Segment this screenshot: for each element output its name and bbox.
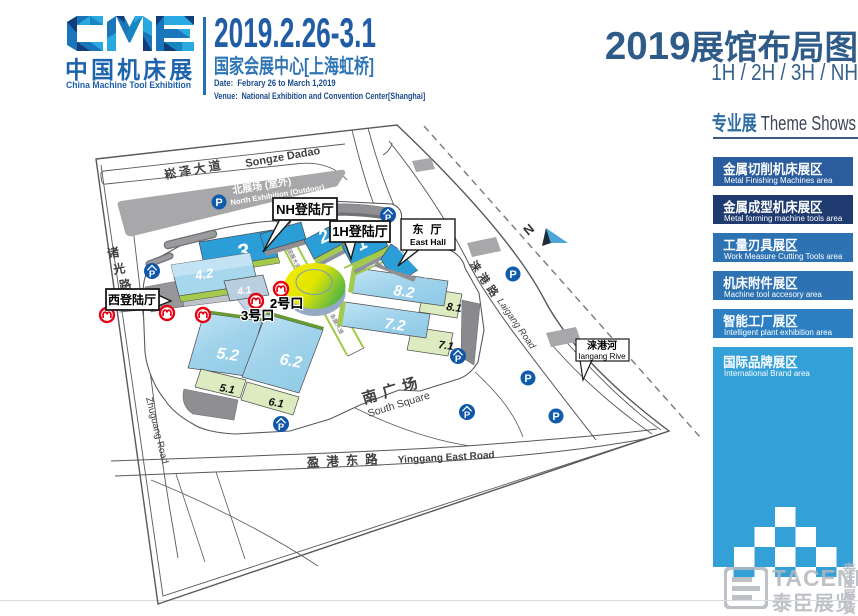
svg-text:P: P <box>464 410 471 421</box>
svg-text:P: P <box>524 373 531 385</box>
svg-text:光: 光 <box>111 260 126 277</box>
svg-text:P: P <box>278 422 285 433</box>
svg-text:8.2: 8.2 <box>392 282 416 302</box>
svg-text:East Hall: East Hall <box>410 237 446 247</box>
svg-text:西登陆厅: 西登陆厅 <box>108 292 156 307</box>
svg-text:NH登陆厅: NH登陆厅 <box>276 202 334 217</box>
svg-text:P: P <box>552 411 559 423</box>
svg-text:P: P <box>509 269 516 281</box>
svg-text:5.2: 5.2 <box>215 345 239 365</box>
svg-text:2号口: 2号口 <box>270 296 303 311</box>
svg-text:P: P <box>215 197 222 209</box>
svg-text:1H登陆厅: 1H登陆厅 <box>332 224 388 239</box>
svg-text:8.1: 8.1 <box>446 301 463 315</box>
svg-text:Laigang Road: Laigang Road <box>495 296 538 351</box>
svg-text:东 厅: 东 厅 <box>412 222 443 236</box>
svg-text:P: P <box>149 269 156 280</box>
svg-text:P: P <box>455 354 462 365</box>
svg-text:Zhuguang Road: Zhuguang Road <box>143 396 170 465</box>
svg-text:Iangang Rive: Iangang Rive <box>578 352 626 361</box>
svg-text:Songze Dadao: Songze Dadao <box>244 145 321 170</box>
svg-text:诸: 诸 <box>106 244 120 261</box>
svg-text:7.2: 7.2 <box>383 315 407 335</box>
svg-text:3号口: 3号口 <box>241 308 274 323</box>
svg-text:Yinggang East Road: Yinggang East Road <box>398 450 495 466</box>
svg-text:N: N <box>520 221 537 239</box>
svg-text:涞港河: 涞港河 <box>587 339 617 352</box>
